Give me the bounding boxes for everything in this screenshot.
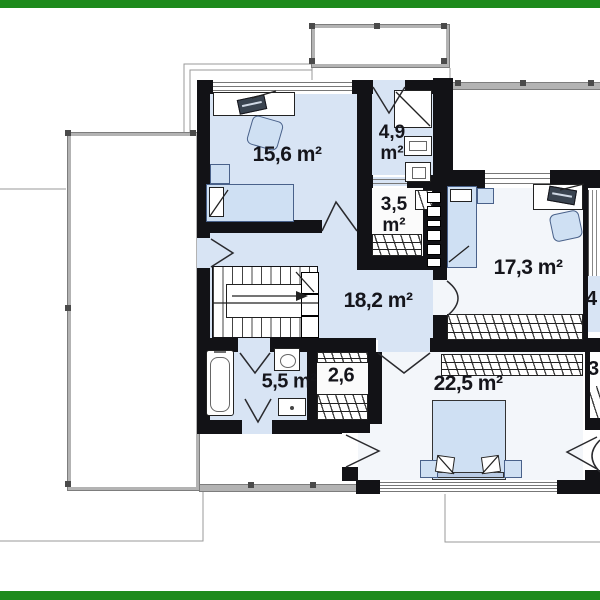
door-swing-linework xyxy=(0,0,600,600)
shower-diagonal xyxy=(396,92,430,126)
door-swing xyxy=(447,281,458,316)
door-swing xyxy=(346,435,379,467)
desk-pen xyxy=(252,91,276,98)
door-swing xyxy=(378,353,430,373)
floor-plan-canvas: 15,6 m² 4,9 m² 3,5 m² 17,3 m² 18,2 m² 5,… xyxy=(0,0,600,600)
door-swing xyxy=(211,239,233,267)
bed-fold xyxy=(210,190,228,216)
door-swing xyxy=(240,353,270,373)
bed-fold xyxy=(449,246,469,262)
stairs-break-line xyxy=(296,272,314,292)
door-swing xyxy=(322,202,357,231)
door-swing xyxy=(245,399,271,422)
bed-fold xyxy=(438,456,454,474)
door-swing xyxy=(373,87,405,113)
stairs-arrow-head xyxy=(296,291,308,301)
bed-fold xyxy=(482,456,498,474)
desk-pen xyxy=(560,184,584,190)
